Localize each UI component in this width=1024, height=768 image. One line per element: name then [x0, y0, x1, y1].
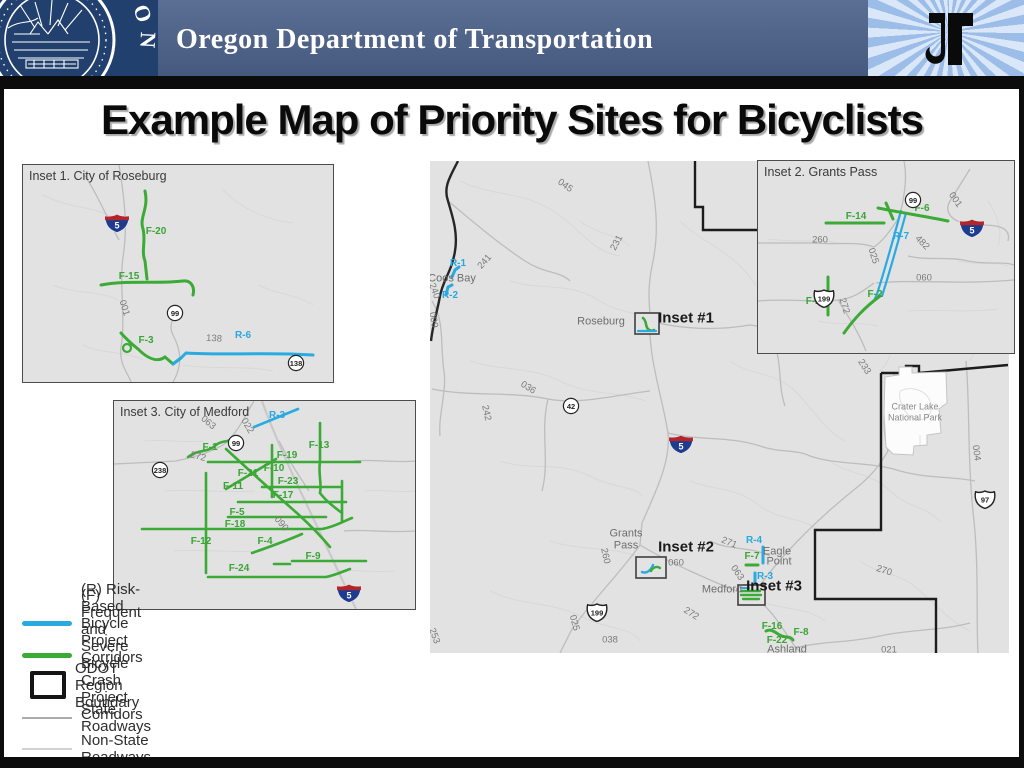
- map-label: Pass: [614, 541, 638, 552]
- map-label: Crater Lake: [891, 403, 938, 412]
- map-label: F-15: [119, 272, 140, 282]
- map-label: F-4: [258, 537, 273, 547]
- map-label: 138: [206, 334, 222, 345]
- inset1-roseburg-map: Inset 1. City of Roseburg F-20F-15001F-3…: [22, 164, 334, 383]
- slide-border-bottom: [0, 757, 1024, 768]
- map-label: F-7: [745, 552, 760, 562]
- svg-text:99: 99: [232, 439, 240, 448]
- svg-text:97: 97: [981, 496, 989, 505]
- legend-region-boundary: ODOT Region Boundary: [22, 673, 148, 697]
- map-label: Grants: [609, 529, 642, 540]
- map-label: R-7: [893, 232, 909, 242]
- map-label: F-9: [306, 552, 321, 562]
- map-label: Inset #1: [658, 311, 714, 326]
- map-label: F-2: [868, 290, 883, 300]
- inset1-indicator: [635, 313, 659, 334]
- odot-t-logo: [911, 7, 981, 69]
- slide-border-left: [0, 89, 4, 768]
- slide: GON Oregon Department of Transportation …: [0, 0, 1024, 768]
- header-banner: GON Oregon Department of Transportation: [0, 0, 1024, 76]
- map-label: F-16: [762, 622, 783, 632]
- map-label: 060: [916, 273, 932, 283]
- oregon-state-seal: GON: [0, 0, 158, 76]
- map-label: Medford: [702, 585, 742, 596]
- slide-border-right: [1019, 89, 1024, 768]
- svg-text:5: 5: [346, 591, 351, 601]
- map-label: F-17: [273, 491, 294, 501]
- inset2-indicator: [636, 557, 666, 578]
- map-label: F-5: [230, 508, 245, 518]
- svg-text:42: 42: [567, 402, 575, 411]
- map-label: 021: [881, 645, 897, 653]
- map-label: Inset #2: [658, 540, 714, 555]
- map-label: F-8: [794, 628, 809, 638]
- agency-title: Oregon Department of Transportation: [176, 0, 653, 76]
- map-label: R-2: [442, 291, 458, 301]
- boundary-box-swatch: [22, 671, 66, 699]
- map-label: Inset #3: [746, 579, 802, 594]
- map-label: F-13: [309, 441, 330, 451]
- legend-label: State Roadways: [81, 701, 154, 735]
- svg-text:5: 5: [969, 226, 974, 236]
- map-label: 260: [599, 547, 612, 564]
- svg-text:199: 199: [818, 295, 831, 304]
- svg-text:138: 138: [290, 359, 303, 368]
- svg-text:199: 199: [591, 609, 604, 618]
- legend-state-roadways: State Roadways: [22, 706, 154, 730]
- seal-arc-text: GON: [113, 0, 158, 57]
- inset3-medford-map: Inset 3. City of Medford R-3063022272F-1…: [113, 400, 416, 610]
- map-label: R-4: [746, 536, 762, 546]
- map-label: F-14: [846, 212, 867, 222]
- map-label: 242: [480, 404, 493, 421]
- svg-text:99: 99: [171, 309, 179, 318]
- map-label: F-23: [278, 477, 299, 487]
- map-label: 004: [970, 444, 982, 461]
- map-label: 060: [668, 558, 684, 568]
- map-label: F-21: [238, 469, 259, 479]
- map-label: 009: [430, 311, 439, 328]
- map-label: 038: [602, 635, 618, 645]
- page-title: Example Map of Priority Sites for Bicycl…: [0, 96, 1024, 144]
- nonstate-line-swatch: [22, 748, 72, 750]
- inset2-title: Inset 2. Grants Pass: [764, 165, 877, 179]
- map-label: National Park: [888, 414, 942, 423]
- map-label: F-19: [277, 451, 298, 461]
- header-divider: [0, 76, 1024, 89]
- risk-line-swatch: [22, 621, 72, 626]
- map-label: 260: [812, 235, 828, 245]
- map-label: R-6: [235, 331, 251, 341]
- map-label: Point: [766, 557, 791, 568]
- map-label: Ashland: [767, 645, 807, 654]
- odot-logo-panel: [868, 0, 1024, 76]
- map-label: F-20: [146, 227, 167, 237]
- svg-text:99: 99: [909, 196, 917, 205]
- map-label: R-3: [269, 411, 285, 421]
- map-label: F-1: [203, 443, 218, 453]
- inset1-title: Inset 1. City of Roseburg: [29, 169, 167, 183]
- map-label: Roseburg: [577, 317, 625, 328]
- map-label: F-12: [191, 537, 212, 547]
- inset2-grants-pass-map: Inset 2. Grants Pass 001F-6F-14R-7260025…: [757, 160, 1015, 354]
- map-label: F-11: [223, 482, 243, 492]
- map-label: R-1: [450, 259, 466, 269]
- inset3-title: Inset 3. City of Medford: [120, 405, 249, 419]
- map-label: F-3: [139, 336, 154, 346]
- svg-text:238: 238: [154, 466, 167, 475]
- state-line-swatch: [22, 717, 72, 719]
- svg-text:5: 5: [114, 221, 119, 231]
- svg-text:5: 5: [678, 442, 683, 452]
- map-label: F-24: [229, 564, 250, 574]
- crash-line-swatch: [22, 653, 72, 658]
- map-label: F-10: [264, 464, 285, 474]
- map-label: F-18: [225, 520, 246, 530]
